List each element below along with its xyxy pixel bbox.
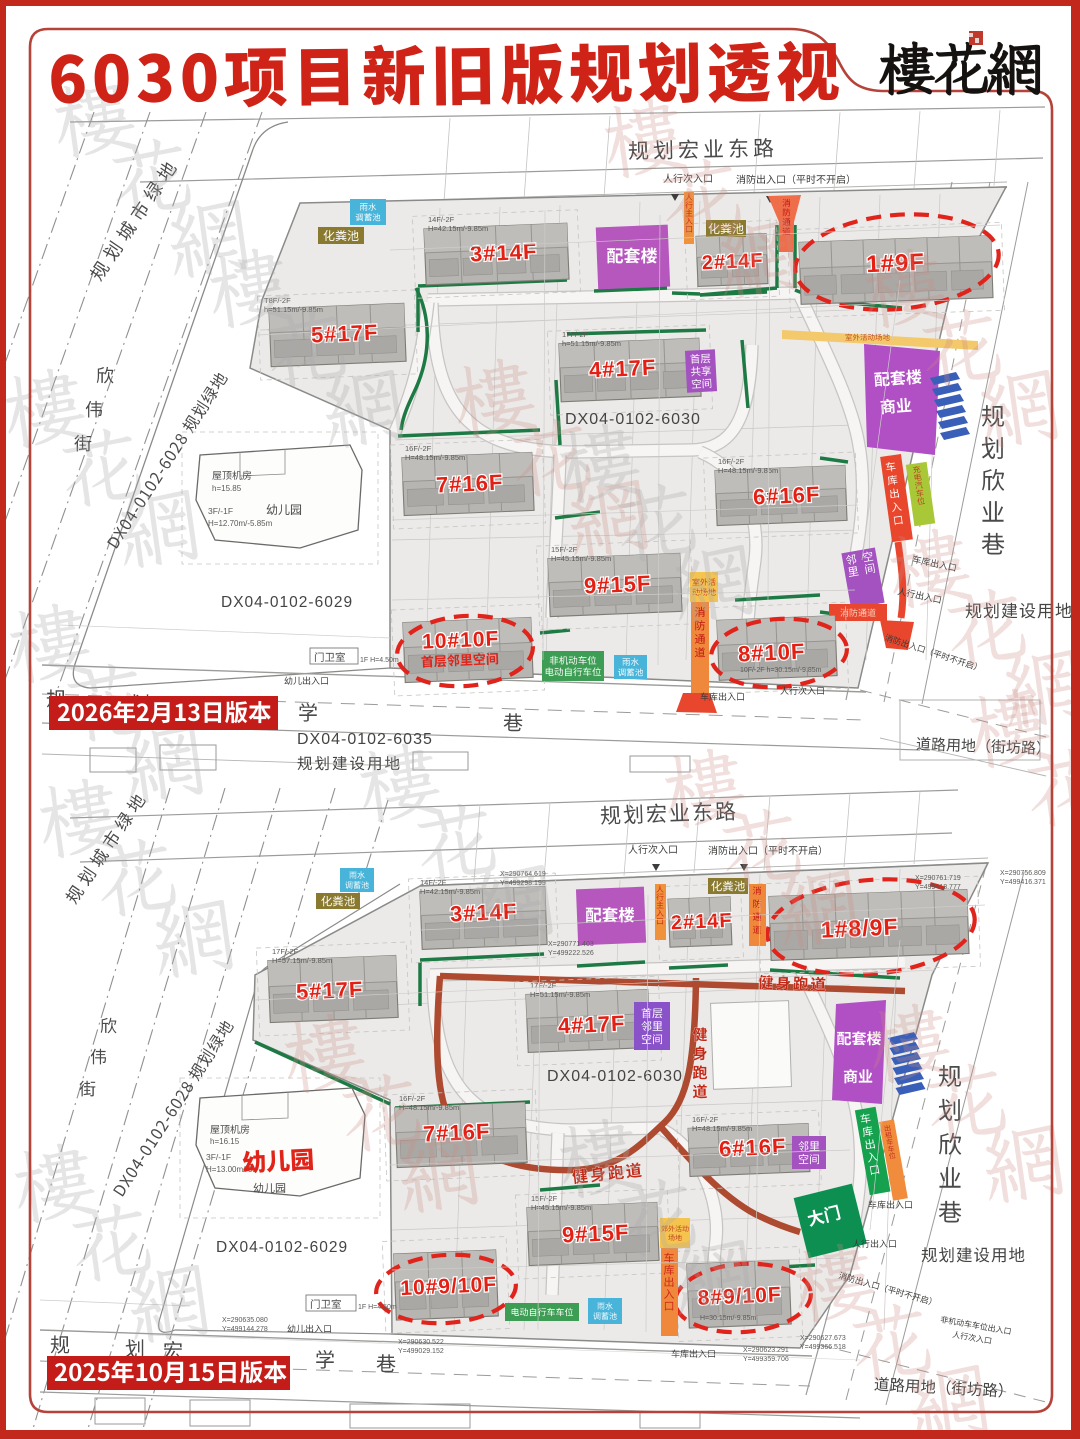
svg-text:H=42.15m/-9.85m: H=42.15m/-9.85m <box>428 224 488 233</box>
svg-text:3#14F: 3#14F <box>469 239 537 267</box>
svg-text:H=45.15m/-9.85m: H=45.15m/-9.85m <box>531 1203 591 1212</box>
svg-text:17F/-2F: 17F/-2F <box>530 981 557 990</box>
svg-text:H=48.15m/-9.85m: H=48.15m/-9.85m <box>692 1124 752 1133</box>
svg-text:10#10F: 10#10F <box>422 627 500 653</box>
svg-text:3F/-1F: 3F/-1F <box>208 506 233 516</box>
svg-text:h=51.15m/-9.85m: h=51.15m/-9.85m <box>562 339 621 348</box>
svg-text:7#16F: 7#16F <box>435 470 503 498</box>
svg-text:9#15F: 9#15F <box>561 1220 629 1248</box>
svg-text:4#17F: 4#17F <box>557 1011 625 1039</box>
svg-text:15F/-2F: 15F/-2F <box>551 545 578 554</box>
svg-text:DX04-0102-6035: DX04-0102-6035 <box>297 731 433 748</box>
svg-text:6#16F: 6#16F <box>718 1134 786 1162</box>
svg-text:DX04-0102-6030: DX04-0102-6030 <box>547 1068 683 1085</box>
svg-text:2#14F: 2#14F <box>670 910 733 935</box>
svg-text:DX04-0102-6030: DX04-0102-6030 <box>565 411 701 428</box>
svg-text:H=12.70m/-5.85m: H=12.70m/-5.85m <box>208 519 273 528</box>
svg-text:16F/-2F: 16F/-2F <box>692 1115 719 1124</box>
svg-text:X=290635.080: X=290635.080 <box>222 1317 268 1324</box>
svg-text:1F H=4.50m: 1F H=4.50m <box>360 657 399 664</box>
svg-text:H=45.15m/-9.85m: H=45.15m/-9.85m <box>551 554 611 563</box>
svg-text:H=48.15m/-9.85m: H=48.15m/-9.85m <box>405 453 465 462</box>
svg-text:H=48.15m/-9.85m: H=48.15m/-9.85m <box>718 466 778 475</box>
svg-text:10F/-2F h=30.15m/-9.85m: 10F/-2F h=30.15m/-9.85m <box>740 667 822 674</box>
svg-text:Y=499222.526: Y=499222.526 <box>548 950 594 957</box>
svg-text:Y=499416.371: Y=499416.371 <box>1000 879 1046 886</box>
svg-text:X=290761.719: X=290761.719 <box>915 875 961 882</box>
svg-text:h=15.85: h=15.85 <box>212 484 242 493</box>
svg-text:16F/-2F: 16F/-2F <box>718 457 745 466</box>
svg-text:4#17F: 4#17F <box>588 355 656 383</box>
svg-text:X=290623.291: X=290623.291 <box>743 1347 789 1354</box>
svg-text:8#10F: 8#10F <box>737 639 805 667</box>
svg-text:14F/-2F: 14F/-2F <box>428 215 455 224</box>
svg-text:Y=499144.278: Y=499144.278 <box>222 1326 268 1333</box>
svg-text:X=290627.673: X=290627.673 <box>800 1335 846 1342</box>
svg-text:H=57.15m/-9.85m: H=57.15m/-9.85m <box>272 956 332 965</box>
svg-text:3F/-1F: 3F/-1F <box>206 1152 231 1162</box>
svg-text:X=290771.403: X=290771.403 <box>548 941 594 948</box>
svg-text:1#8/9F: 1#8/9F <box>820 913 899 942</box>
svg-text:15F/-2F: 15F/-2F <box>531 1194 558 1203</box>
svg-text:5#17F: 5#17F <box>310 320 378 348</box>
svg-text:17F/-2F: 17F/-2F <box>562 330 589 339</box>
svg-text:Y=499418.777: Y=499418.777 <box>915 884 961 891</box>
svg-text:17F/-2F: 17F/-2F <box>272 947 299 956</box>
svg-text:Y=499029.152: Y=499029.152 <box>398 1348 444 1355</box>
svg-text:1F H=4.50m: 1F H=4.50m <box>358 1304 397 1311</box>
svg-text:16F/-2F: 16F/-2F <box>405 444 432 453</box>
svg-text:5#17F: 5#17F <box>295 977 363 1005</box>
svg-text:Y=499366.518: Y=499366.518 <box>800 1344 846 1351</box>
svg-text:H=30.15m/-9.85m: H=30.15m/-9.85m <box>700 1315 756 1322</box>
svg-text:H=51.15m/-9.85m: H=51.15m/-9.85m <box>530 990 590 999</box>
svg-text:10#9/10F: 10#9/10F <box>400 1273 498 1300</box>
svg-text:H=48.15m/-9.85m: H=48.15m/-9.85m <box>399 1103 459 1112</box>
svg-text:h=16.15: h=16.15 <box>210 1137 240 1146</box>
svg-text:DX04-0102-6029: DX04-0102-6029 <box>216 1239 348 1256</box>
svg-text:6#16F: 6#16F <box>752 482 820 510</box>
svg-text:16F/-2F: 16F/-2F <box>399 1094 426 1103</box>
svg-text:DX04-0102-6029: DX04-0102-6029 <box>221 594 353 611</box>
svg-text:X=290756.809: X=290756.809 <box>1000 870 1046 877</box>
svg-text:H=42.15m/-9.85m: H=42.15m/-9.85m <box>420 887 480 896</box>
